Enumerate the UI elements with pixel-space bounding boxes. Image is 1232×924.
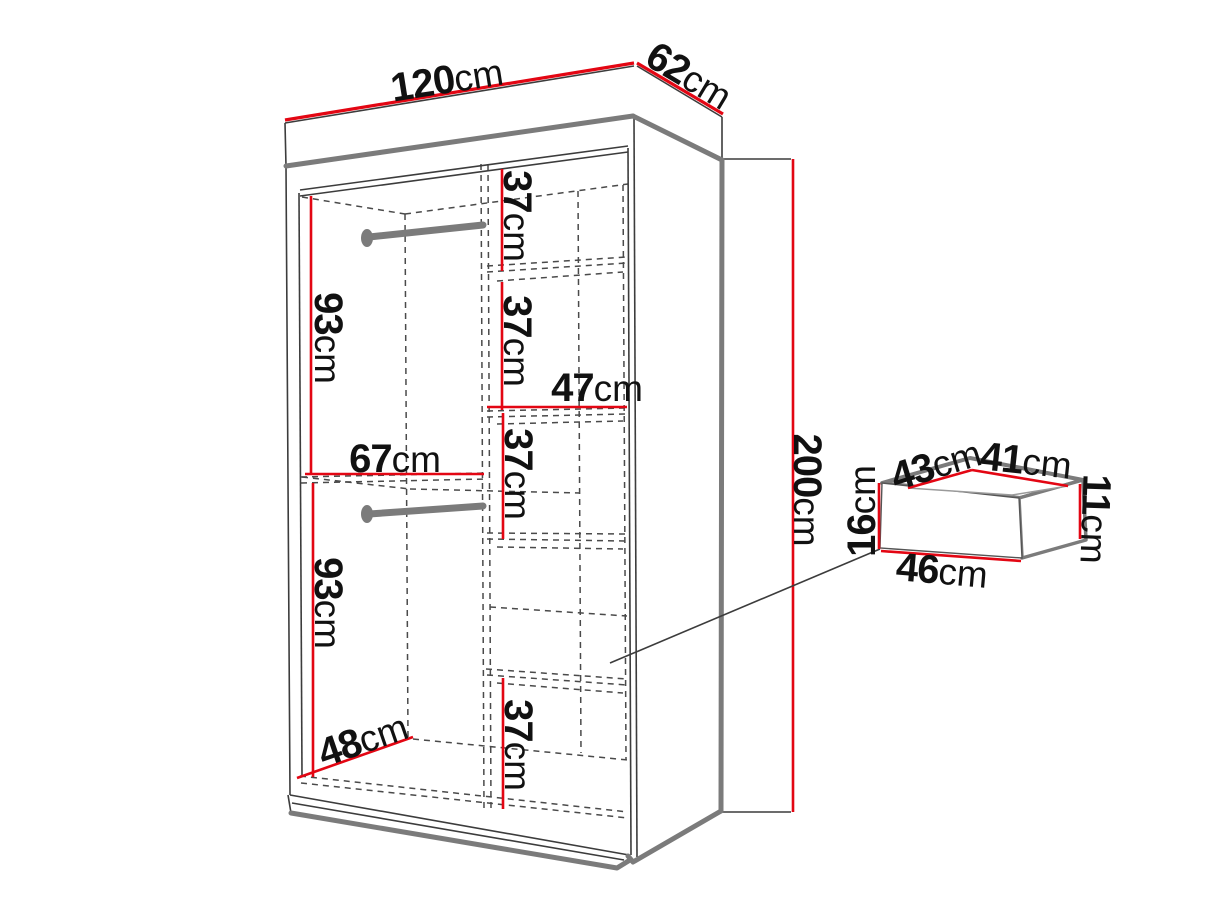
dim-drawer-front-width-label: 46cm [894,545,989,597]
dim-shelf-gap-4-label: 37cm [496,699,540,791]
dim-hanging-upper-label: 93cm [306,292,350,384]
dim-shelf-width-label: 47cm [551,366,643,410]
dim-left-section-width-label: 67cm [349,437,441,481]
wardrobe-dimension-diagram: 120cm 62cm 200cm 93cm 93cm 37cm 37cm 37c… [0,0,1232,924]
dim-drawer-inner-height-label: 11cm [1071,473,1118,564]
dim-shelf-gap-3-label: 37cm [496,428,540,520]
dim-shelf-gap-2-label: 37cm [495,295,539,387]
dim-hanging-lower-label: 93cm [306,557,350,649]
dim-total-height-label: 200cm [785,433,829,546]
diagram-page: 120cm 62cm 200cm 93cm 93cm 37cm 37cm 37c… [0,0,1232,924]
dim-drawer-front-height-label: 16cm [840,465,884,557]
dim-shelf-gap-1-label: 37cm [495,170,539,262]
